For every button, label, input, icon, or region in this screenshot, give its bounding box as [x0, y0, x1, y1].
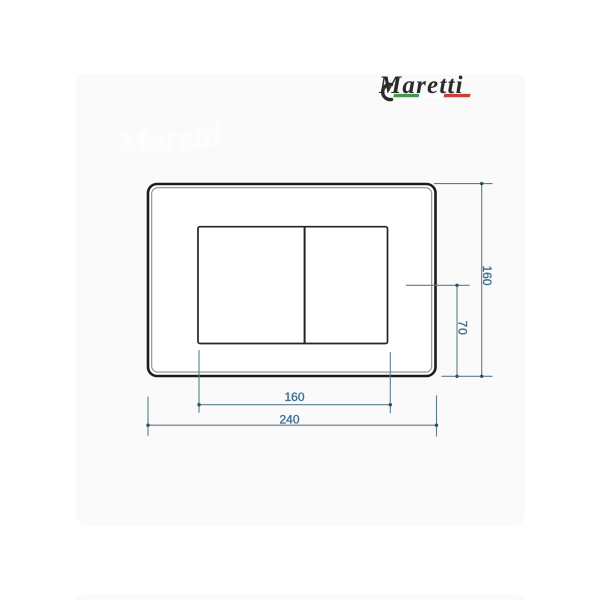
svg-text:160: 160	[480, 266, 494, 286]
svg-text:70: 70	[456, 321, 470, 336]
svg-text:240: 240	[280, 413, 300, 427]
svg-text:Maretti: Maretti	[116, 116, 224, 162]
svg-text:160: 160	[285, 390, 305, 404]
